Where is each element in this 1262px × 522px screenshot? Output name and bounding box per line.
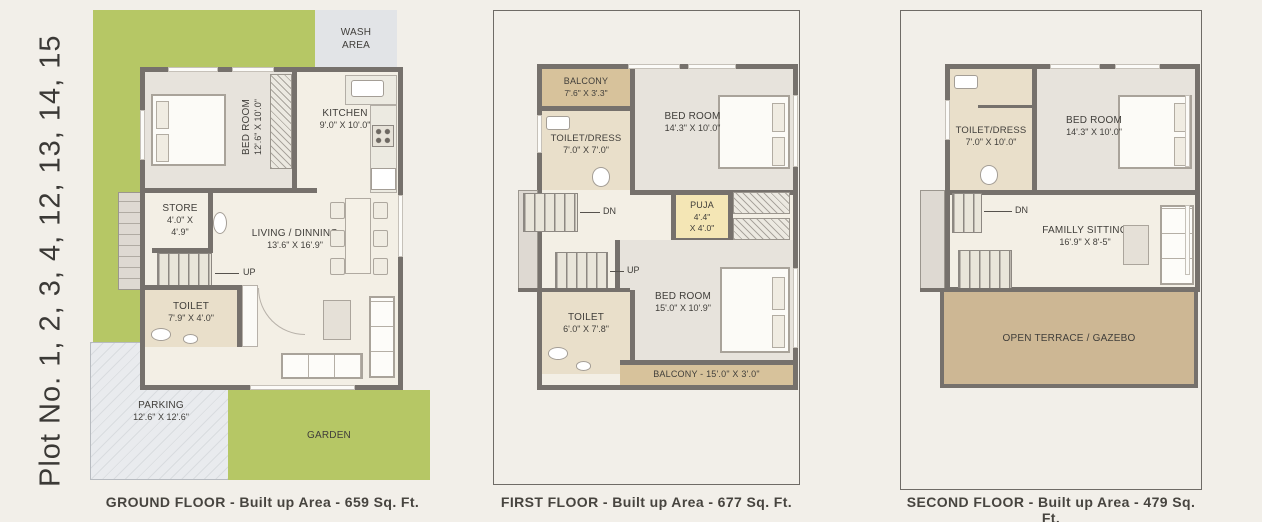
window bbox=[398, 195, 403, 257]
stairs-dn-label: DN bbox=[603, 206, 616, 216]
toilet-dress-dims: 7'.0" X 7'.0" bbox=[563, 145, 609, 157]
bedroom2-dims: 15'.0" X 10'.9" bbox=[655, 303, 711, 315]
entrance-nook bbox=[242, 285, 258, 347]
chair-icon bbox=[373, 258, 388, 275]
toilet-dress-name: TOILET/DRESS bbox=[551, 133, 622, 145]
sofa-icon bbox=[369, 296, 395, 378]
toilet-dims: 6'.0" X 7'.8" bbox=[563, 324, 609, 336]
coffee-table-icon bbox=[1123, 225, 1149, 265]
plot-number-label: Plot No. 1, 2, 3, 4, 12, 13, 14, 15 bbox=[12, 0, 90, 522]
wall bbox=[1037, 190, 1195, 195]
bedroom2-name: BED ROOM bbox=[655, 290, 711, 303]
ground-floor-caption: GROUND FLOOR - Built up Area - 659 Sq. F… bbox=[90, 494, 435, 510]
wc-icon bbox=[548, 347, 568, 360]
pillow-icon bbox=[772, 277, 785, 310]
pillow-icon bbox=[772, 315, 785, 348]
window bbox=[628, 64, 680, 69]
washbasin-icon bbox=[954, 75, 978, 89]
toilet-dress-label: TOILET/DRESS 7'.0" X 7'.0" bbox=[542, 129, 630, 161]
bedroom1-label: BED ROOM 14'.3" X 10'.0" bbox=[640, 105, 745, 139]
wc-icon bbox=[151, 328, 171, 341]
living-dims: 13'.6" X 16'.9" bbox=[267, 240, 323, 252]
family-name: FAMILLY SITTING bbox=[1042, 224, 1127, 237]
first-floor-caption: FIRST FLOOR - Built up Area - 677 Sq. Ft… bbox=[493, 494, 800, 510]
wash-area-label2: AREA bbox=[342, 39, 370, 52]
chair-icon bbox=[330, 230, 345, 247]
stairs-icon bbox=[958, 250, 1012, 290]
open-terrace: OPEN TERRACE / GAZEBO bbox=[940, 288, 1198, 388]
washbasin-icon bbox=[183, 334, 198, 344]
toilet-dims: 7'.9" X 4'.0" bbox=[168, 313, 214, 325]
bedroom-label: BED ROOM 14'.3" X 10'.0" bbox=[1040, 109, 1148, 143]
window bbox=[945, 100, 950, 140]
ground-floor-house: BED ROOM 12'.6" X 10'.0" KITCHEN 9'.0" X… bbox=[140, 67, 403, 390]
toilet-dress-name: TOILET/DRESS bbox=[956, 125, 1027, 137]
bed-icon bbox=[151, 94, 226, 166]
family-dims: 16'.9" X 8'-5" bbox=[1059, 237, 1110, 249]
first-floor-plan: BALCONY 7'.6" X 3'.3" TOILET/DRESS 7'.0"… bbox=[493, 0, 800, 522]
window bbox=[1115, 64, 1160, 69]
wc-icon bbox=[592, 167, 610, 187]
bedroom1-name: BED ROOM bbox=[664, 110, 720, 123]
toilet-name: TOILET bbox=[568, 311, 604, 324]
window bbox=[793, 95, 798, 167]
bedroom-dims: 12'.6" X 10'.0" bbox=[253, 99, 265, 155]
door-arc-icon bbox=[258, 288, 305, 335]
store-room: STORE 4'.0" X 4'.9" bbox=[152, 193, 208, 248]
stairs-dn-label: DN bbox=[1015, 205, 1028, 215]
wardrobe-hatch bbox=[733, 218, 790, 240]
window bbox=[688, 64, 736, 69]
window bbox=[537, 115, 542, 153]
window bbox=[793, 268, 798, 348]
window bbox=[250, 385, 355, 390]
puja-room: PUJA 4'.4" X 4'.0" bbox=[676, 195, 728, 239]
chair-icon bbox=[373, 202, 388, 219]
dining-table-icon bbox=[345, 198, 371, 274]
washbasin-icon bbox=[546, 116, 570, 130]
puja-dims1: 4'.4" bbox=[694, 212, 710, 223]
bedroom-label: BED ROOM 12'.6" X 10'.0" bbox=[235, 62, 269, 192]
toilet-name: TOILET bbox=[173, 300, 209, 313]
pillow-icon bbox=[156, 134, 169, 162]
garden-name: GARDEN bbox=[307, 429, 351, 442]
leader-line bbox=[580, 212, 600, 213]
leader-line bbox=[610, 271, 624, 272]
bedroom-name: BED ROOM bbox=[240, 99, 253, 155]
pillow-icon bbox=[156, 101, 169, 129]
stairs-up-label: UP bbox=[627, 265, 640, 275]
kitchen-dims: 9'.0" X 10'.0" bbox=[320, 120, 371, 132]
toilet-label: TOILET 6'.0" X 7'.8" bbox=[542, 307, 630, 339]
window bbox=[1050, 64, 1100, 69]
bedroom2-label: BED ROOM 15'.0" X 10'.9" bbox=[628, 285, 738, 319]
bedroom-name: BED ROOM bbox=[1066, 114, 1122, 127]
pillow-icon bbox=[772, 103, 785, 132]
window bbox=[168, 67, 218, 72]
store-dims1: 4'.0" X bbox=[167, 215, 193, 227]
pillow-icon bbox=[772, 137, 785, 166]
wall bbox=[145, 285, 242, 290]
stove-icon bbox=[372, 125, 394, 147]
window bbox=[140, 110, 145, 160]
window bbox=[232, 67, 274, 72]
leader-line bbox=[984, 211, 1012, 212]
garden-area: GARDEN bbox=[228, 390, 430, 480]
washbasin-icon bbox=[576, 361, 591, 371]
bedroom-dims: 14'.3" X 10'.0" bbox=[1066, 127, 1122, 139]
ground-floor-plan: WASH AREA PARKING 12'.6" X 12'.6" GARDEN… bbox=[90, 0, 435, 522]
wall bbox=[671, 190, 676, 243]
parking-name: PARKING bbox=[138, 399, 184, 412]
parking-dims: 12'.6" X 12'.6" bbox=[133, 412, 189, 424]
stairs-up-label: UP bbox=[243, 267, 256, 277]
wash-area: WASH AREA bbox=[315, 10, 397, 67]
puja-dims2: X 4'.0" bbox=[690, 223, 715, 234]
stairs-icon bbox=[523, 193, 578, 232]
store-dims2: 4'.9" bbox=[171, 227, 188, 239]
sink-icon bbox=[351, 80, 384, 97]
stairs-icon bbox=[555, 252, 608, 290]
bedroom1-dims: 14'.3" X 10'.0" bbox=[665, 123, 721, 135]
window bbox=[1185, 95, 1190, 167]
coffee-table-icon bbox=[323, 300, 351, 340]
toilet-dress-dims: 7'.0" X 10'.0" bbox=[966, 137, 1017, 149]
chair-icon bbox=[330, 258, 345, 275]
wardrobe-hatch bbox=[733, 192, 790, 214]
plot-green-left bbox=[93, 10, 140, 342]
window bbox=[1185, 205, 1190, 275]
balcony: BALCONY 7'.6" X 3'.3" bbox=[542, 69, 630, 106]
puja-name: PUJA bbox=[690, 200, 714, 212]
chair-icon bbox=[330, 202, 345, 219]
kitchen-name: KITCHEN bbox=[322, 107, 367, 120]
balcony-name: BALCONY bbox=[564, 76, 608, 88]
second-floor-caption: SECOND FLOOR - Built up Area - 479 Sq. F… bbox=[900, 494, 1202, 522]
toilet-label: TOILET 7'.9" X 4'.0" bbox=[149, 296, 233, 328]
store-name: STORE bbox=[162, 202, 197, 215]
living-name: LIVING / DINNING bbox=[252, 227, 339, 240]
second-floor-plan: TOILET/DRESS 7'.0" X 10'.0" BED ROOM 14'… bbox=[900, 0, 1202, 522]
leader-line bbox=[215, 273, 239, 274]
toilet-dress-label: TOILET/DRESS 7'.0" X 10'.0" bbox=[950, 121, 1032, 153]
sofa-icon bbox=[281, 353, 363, 379]
terrace-label: OPEN TERRACE / GAZEBO bbox=[1003, 332, 1136, 345]
wash-area-label: WASH bbox=[341, 26, 371, 39]
balcony2: BALCONY - 15'.0" X 3'.0" bbox=[620, 365, 793, 385]
wall bbox=[272, 188, 317, 193]
chair-icon bbox=[373, 230, 388, 247]
wall bbox=[978, 105, 1032, 108]
wardrobe-hatch bbox=[270, 74, 292, 169]
stair-landing-block bbox=[920, 190, 945, 290]
balcony2-label: BALCONY - 15'.0" X 3'.0" bbox=[653, 369, 760, 381]
kitchen-platform bbox=[371, 168, 396, 190]
geyser-icon bbox=[213, 212, 227, 234]
wall bbox=[518, 288, 630, 292]
stairs-icon bbox=[952, 193, 982, 233]
balcony-dims: 7'.6" X 3'.3" bbox=[564, 88, 607, 99]
wc-icon bbox=[980, 165, 998, 185]
floor-plan-sheet: Plot No. 1, 2, 3, 4, 12, 13, 14, 15 WASH… bbox=[0, 0, 1262, 522]
